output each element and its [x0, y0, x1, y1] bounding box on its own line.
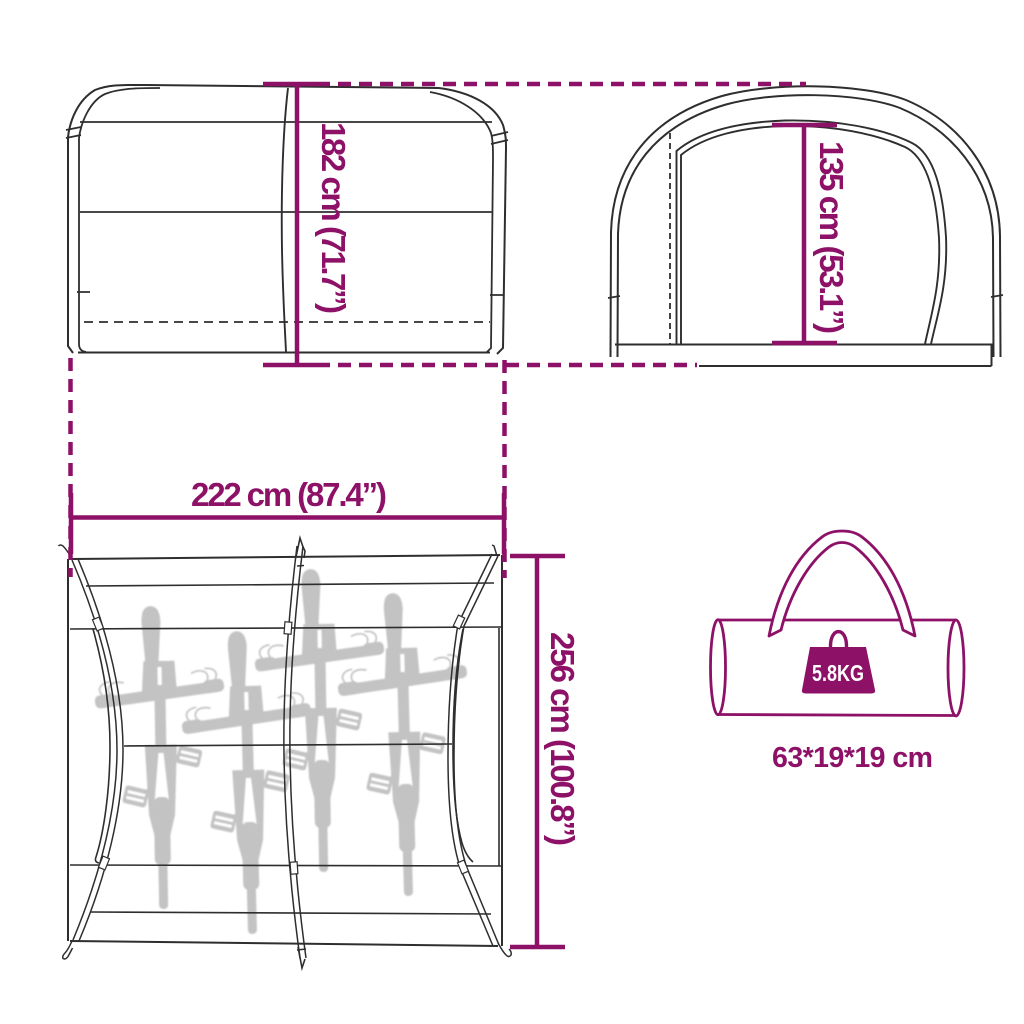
svg-text:63*19*19 cm: 63*19*19 cm [772, 742, 933, 774]
svg-text:222 cm (87.4”): 222 cm (87.4”) [191, 476, 387, 513]
svg-text:182 cm (71.7”): 182 cm (71.7”) [315, 122, 352, 314]
svg-text:5.8KG: 5.8KG [812, 660, 864, 686]
svg-text:135 cm (53.1”): 135 cm (53.1”) [813, 141, 850, 334]
svg-text:256 cm (100.8”): 256 cm (100.8”) [544, 632, 581, 846]
